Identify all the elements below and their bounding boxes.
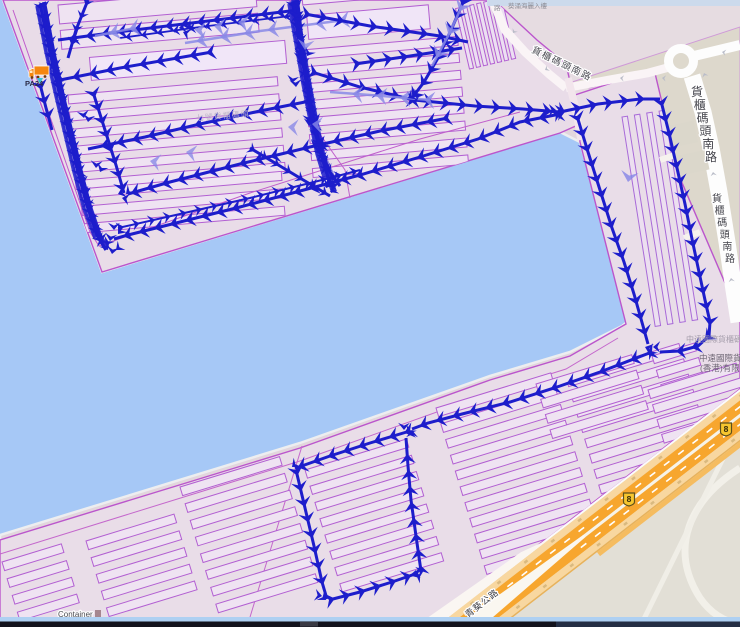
svg-text:8: 8 [627, 494, 632, 504]
svg-text:頭: 頭 [720, 229, 730, 241]
svg-text:路: 路 [705, 149, 717, 164]
svg-text:中遠國際貨櫃碼頭: 中遠國際貨櫃碼頭 [686, 334, 740, 344]
svg-text:PA24: PA24 [25, 79, 44, 88]
svg-text:(香港)有限公: (香港)有限公 [700, 363, 740, 373]
svg-text:碼: 碼 [697, 111, 709, 125]
svg-text:路: 路 [494, 3, 501, 12]
svg-text:路: 路 [725, 252, 735, 265]
svg-text:8: 8 [724, 424, 729, 434]
svg-text:南: 南 [722, 240, 732, 253]
svg-text:頭: 頭 [699, 124, 711, 138]
svg-text:葵涌海麗入樓: 葵涌海麗入樓 [508, 1, 548, 10]
svg-text:貨: 貨 [712, 192, 722, 205]
svg-text:櫃: 櫃 [715, 204, 725, 217]
svg-text:南: 南 [702, 136, 714, 151]
svg-text:中遠國際貨櫃: 中遠國際貨櫃 [699, 353, 740, 363]
svg-text:碼: 碼 [717, 217, 727, 229]
svg-text:貨: 貨 [691, 84, 703, 99]
svg-text:櫃: 櫃 [694, 98, 706, 112]
